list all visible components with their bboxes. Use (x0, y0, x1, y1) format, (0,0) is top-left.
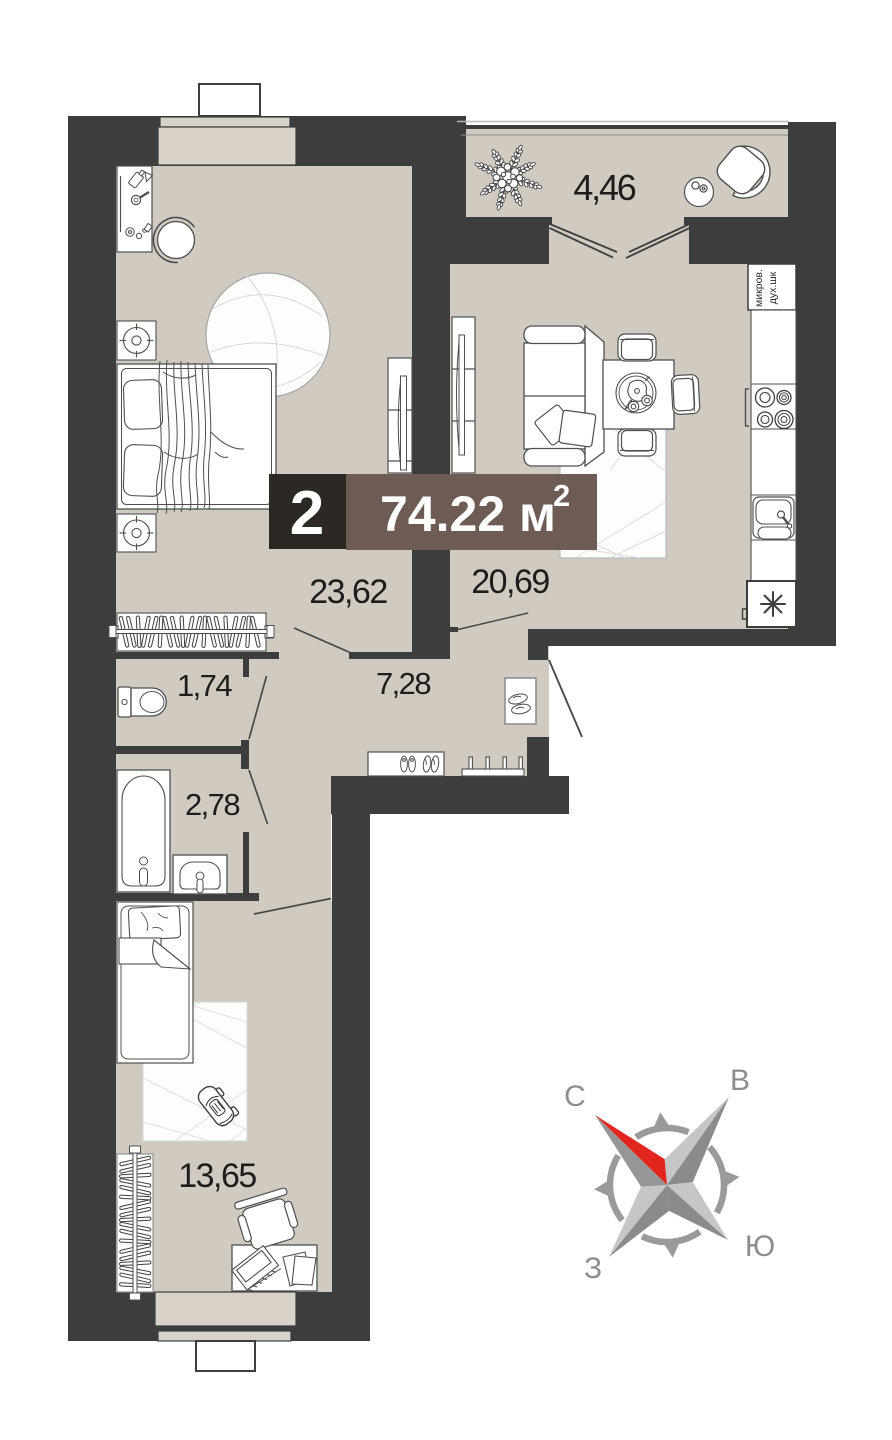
svg-text:1,74: 1,74 (177, 668, 232, 703)
svg-text:20,69: 20,69 (471, 563, 549, 601)
svg-text:23,62: 23,62 (309, 573, 387, 611)
svg-text:Ю: Ю (745, 1230, 775, 1263)
svg-text:74.22 м: 74.22 м (380, 486, 556, 542)
svg-text:2,78: 2,78 (185, 787, 239, 822)
svg-text:С: С (564, 1080, 586, 1113)
svg-text:В: В (730, 1064, 750, 1097)
svg-text:13,65: 13,65 (178, 1157, 256, 1195)
svg-text:З: З (584, 1252, 602, 1285)
svg-text:4,46: 4,46 (573, 167, 635, 208)
svg-text:микров.: микров. (753, 269, 765, 307)
svg-text:2: 2 (553, 478, 570, 513)
svg-text:2: 2 (290, 479, 324, 548)
svg-text:7,28: 7,28 (376, 666, 430, 701)
svg-text:дух.шк: дух.шк (767, 271, 779, 304)
